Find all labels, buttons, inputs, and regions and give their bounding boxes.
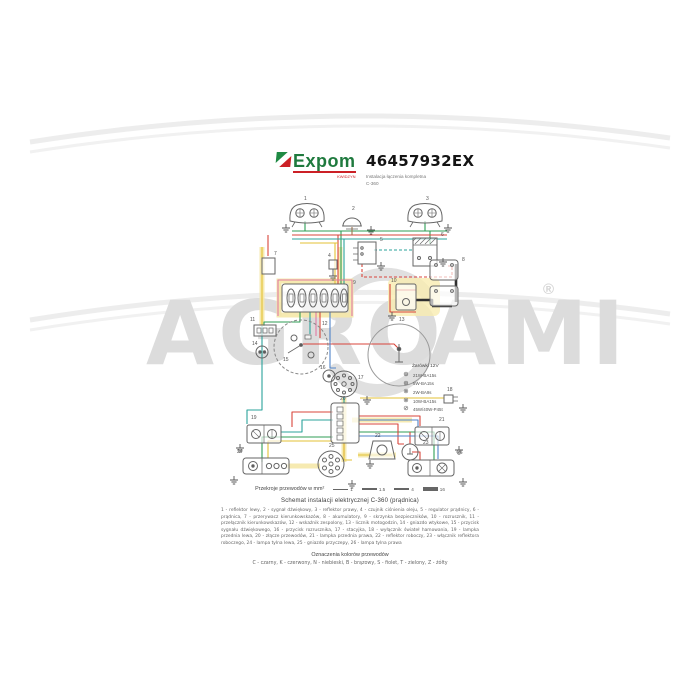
component-label-15: 15	[283, 357, 289, 363]
headlamp-left	[290, 204, 324, 228]
expom-logo-icon	[275, 152, 292, 167]
wire-swatch	[394, 488, 409, 491]
part-subtitle-line2: C-360	[366, 181, 474, 188]
part-number: 46457932EX	[366, 152, 474, 170]
brand-subtitle: KWIDZYN	[276, 174, 356, 179]
components	[230, 204, 467, 489]
wire-colors-text: C - czarny, K - czerwony, N - niebieski,…	[168, 561, 532, 566]
component-label-26: 26	[457, 450, 463, 456]
wire-colors-title: Oznaczenia kolorów przewodów	[168, 552, 532, 558]
front-lamp-left	[247, 425, 281, 443]
rear-lamp-left	[243, 458, 289, 474]
bulb-legend-row: ⊗ 2W-BA9s	[402, 388, 472, 397]
component-label-2: 2	[352, 206, 355, 212]
component-label-3: 3	[426, 196, 429, 202]
bulb-legend-row: ⊗ 10W-BA15s	[402, 397, 472, 406]
component-label-4: 4	[328, 253, 331, 259]
component-label-20: 20	[340, 396, 346, 402]
brand-block: Expom KWIDZYN	[276, 152, 356, 179]
component-label-5: 5	[380, 237, 383, 243]
wire-size-item: 4	[394, 487, 414, 492]
bulb-symbol-icon: ⊗	[402, 398, 410, 405]
fuse-box	[282, 284, 348, 312]
wire-size-label: Przekroje przewodów w mm²	[255, 486, 324, 492]
component-label-25: 25	[329, 443, 335, 449]
turn-signal-relay	[262, 258, 275, 274]
component-label-17: 17	[358, 375, 364, 381]
wire-size-item: 1	[333, 487, 353, 492]
wire-swatch	[362, 488, 377, 490]
bulb-symbol-icon: ⊘	[402, 406, 410, 413]
component-label-24: 24	[237, 449, 243, 455]
ignition-switch	[331, 371, 357, 397]
bulb-legend-title: Żarówki 12V	[402, 364, 472, 369]
component-label-13: 13	[399, 317, 405, 323]
trailer-socket	[318, 451, 344, 477]
component-label-16: 16	[320, 365, 326, 371]
product-image: AGRO AMI ® Expom KWIDZYN 46457932EX Inst…	[0, 0, 700, 700]
component-label-9: 9	[353, 280, 356, 286]
work-light	[369, 441, 395, 459]
wire-swatch	[423, 487, 438, 491]
voltage-regulator	[353, 242, 376, 264]
component-label-22: 22	[375, 433, 381, 439]
component-label-19: 19	[251, 415, 257, 421]
headlamp-right	[408, 204, 442, 228]
bulb-legend: Żarówki 12V ⊕ 21W-BA15s ⊕ 5W-BA15s ⊗ 2W-…	[402, 364, 472, 414]
component-label-6: 6	[441, 232, 444, 238]
front-lamp-right	[415, 427, 449, 445]
bulb-legend-row: ⊘ 45W/40W-P45t	[402, 405, 472, 414]
component-label-12: 12	[322, 321, 328, 327]
wire-swatch	[333, 489, 348, 490]
rear-connector	[331, 403, 359, 443]
bulb-legend-row: ⊕ 21W-BA15s	[402, 371, 472, 380]
wire-size-item: 1.5	[362, 487, 385, 492]
brand-name: Expom	[293, 152, 356, 173]
wiring-schematic: 1234567891011121314151617181920212223242…	[0, 0, 700, 700]
component-label-10: 10	[391, 278, 397, 284]
bulb-legend-row: ⊕ 5W-BA15s	[402, 380, 472, 389]
component-label-21: 21	[439, 417, 445, 423]
footer-legend: Przekroje przewodów w mm² 1 1.5 4 16 Sch…	[168, 484, 532, 566]
component-label-23: 23	[423, 440, 429, 446]
part-number-block: 46457932EX Instalacja łączenia kompletna…	[366, 152, 474, 188]
schematic-title: Schemat instalacji elektrycznej C-360 (p…	[168, 498, 532, 504]
wires-red	[268, 235, 452, 460]
component-list-text: 1 - reflektor lewy, 2 - sygnał dźwiękowy…	[221, 508, 479, 548]
wire-size-item: 16	[423, 487, 445, 492]
bulb-symbol-icon: ⊗	[402, 389, 410, 396]
oil-pressure-sender	[329, 260, 337, 272]
component-label-7: 7	[274, 251, 277, 257]
component-label-1: 1	[304, 196, 307, 202]
turn-signal-switch	[254, 325, 276, 336]
wire-size-legend: Przekroje przewodów w mm² 1 1.5 4 16	[168, 484, 532, 494]
component-label-14: 14	[252, 341, 258, 347]
rear-lamp-right	[408, 460, 454, 476]
bulb-symbol-icon: ⊕	[402, 381, 410, 388]
component-label-11: 11	[250, 317, 255, 323]
starter	[396, 284, 416, 310]
bulb-symbol-icon: ⊕	[402, 372, 410, 379]
component-label-8: 8	[462, 257, 465, 263]
part-subtitle-line1: Instalacja łączenia kompletna	[366, 174, 474, 181]
